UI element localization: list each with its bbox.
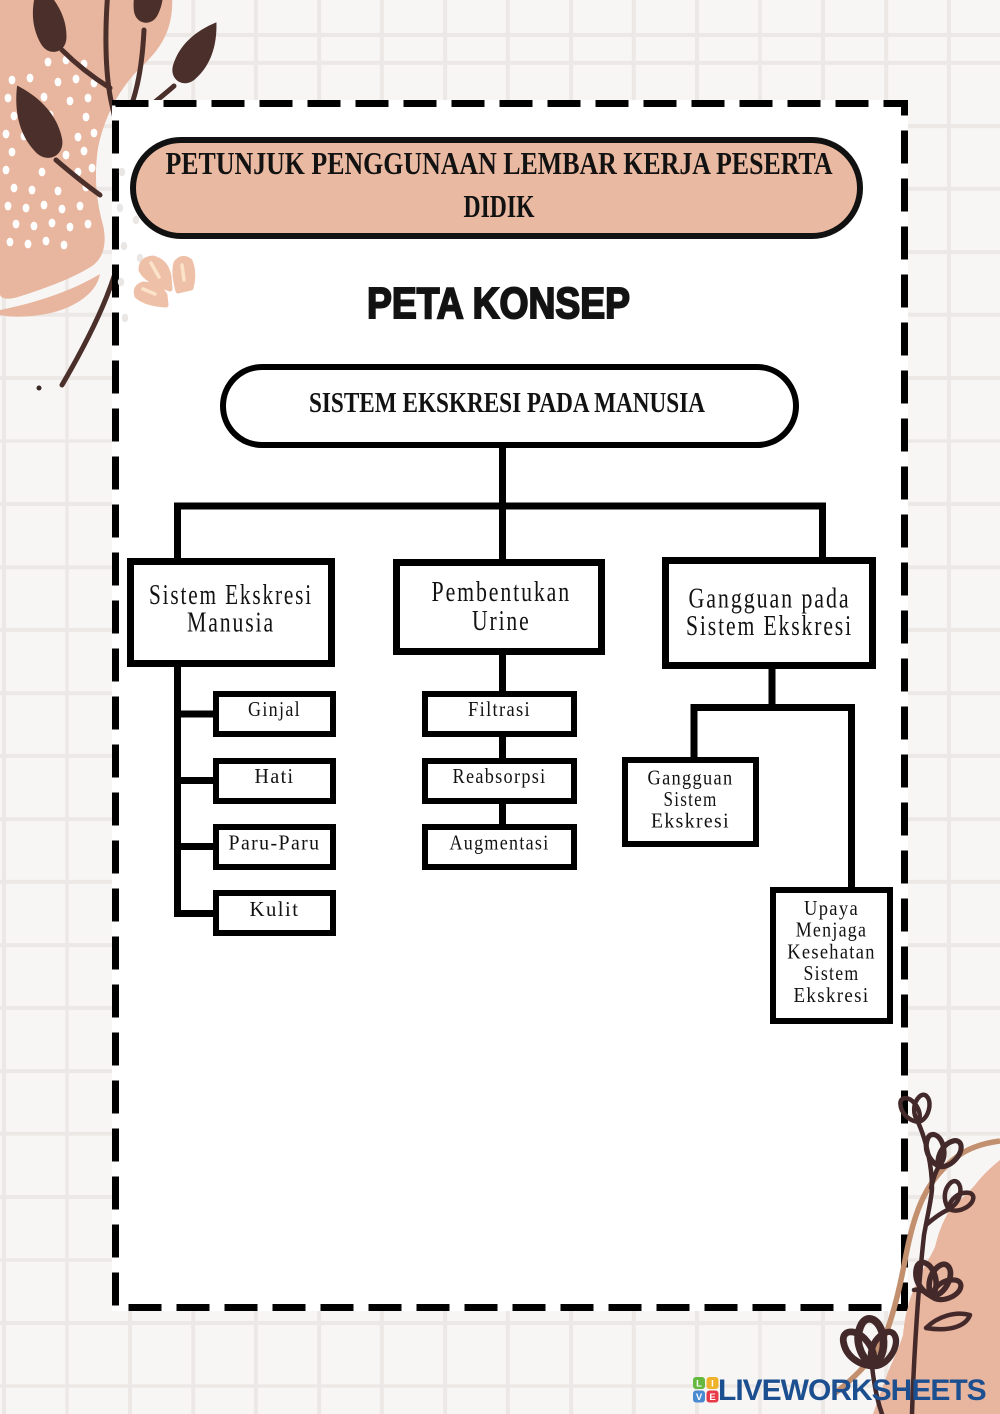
svg-text:PETUNJUK PENGGUNAAN LEMBAR KER: PETUNJUK PENGGUNAAN LEMBAR KERJA PESERTA [166,145,833,181]
svg-text:Paru-Paru: Paru-Paru [229,831,321,855]
svg-text:Ekskresi: Ekskresi [651,809,730,833]
svg-text:PETA KONSEP: PETA KONSEP [367,279,630,328]
svg-text:Sistem: Sistem [664,787,718,811]
svg-text:Sistem Ekskresi: Sistem Ekskresi [686,610,853,642]
svg-text:Reabsorpsi: Reabsorpsi [453,764,547,788]
svg-text:LIVEWORKSHEETS: LIVEWORKSHEETS [718,1374,986,1407]
svg-text:Pembentukan: Pembentukan [432,576,572,608]
svg-text:Manusia: Manusia [187,607,275,639]
svg-text:Upaya: Upaya [804,896,859,920]
svg-text:Filtrasi: Filtrasi [468,697,531,721]
svg-text:Hati: Hati [255,764,295,788]
svg-text:Urine: Urine [472,605,531,637]
svg-text:I: I [711,1379,714,1390]
svg-text:Ekskresi: Ekskresi [794,983,870,1007]
svg-text:Gangguan: Gangguan [648,766,734,790]
svg-text:Menjaga: Menjaga [796,918,868,942]
svg-text:DIDIK: DIDIK [464,188,535,224]
svg-text:Kesehatan: Kesehatan [787,940,876,964]
svg-text:V: V [696,1392,703,1403]
svg-text:Ginjal: Ginjal [248,697,301,721]
svg-text:Sistem: Sistem [804,961,860,985]
svg-text:Kulit: Kulit [250,897,300,921]
svg-text:Augmentasi: Augmentasi [450,831,550,855]
svg-text:L: L [696,1379,702,1390]
svg-text:SISTEM EKSKRESI PADA MANUSIA: SISTEM EKSKRESI PADA MANUSIA [309,388,706,419]
